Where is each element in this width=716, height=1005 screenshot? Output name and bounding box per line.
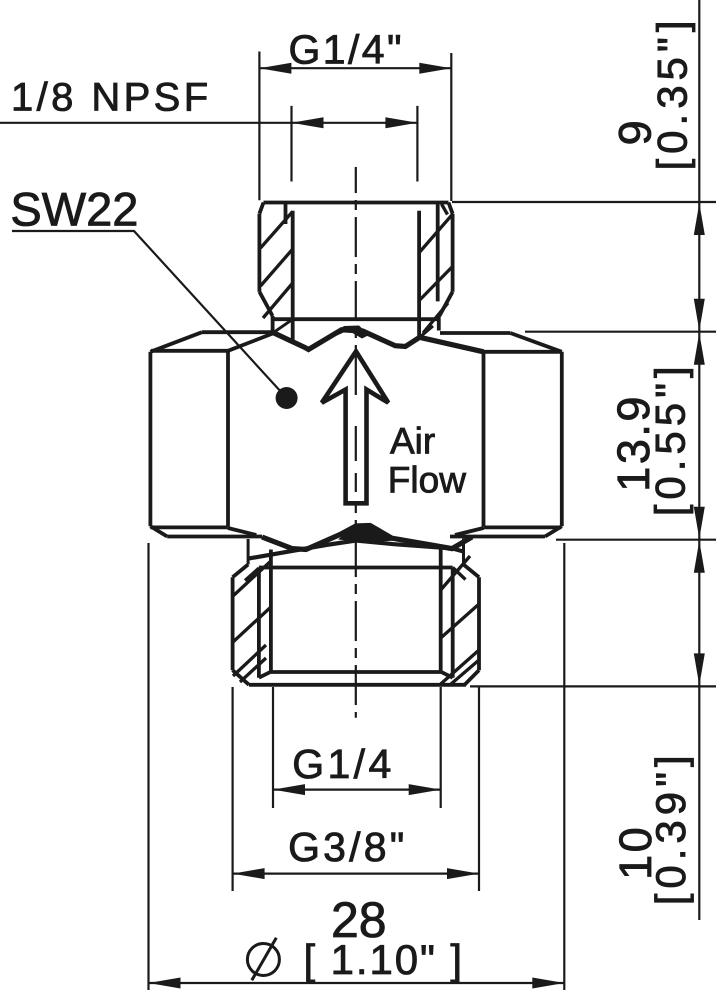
svg-text:Air: Air	[390, 421, 435, 462]
svg-text:[0.39"]: [0.39"]	[647, 750, 694, 905]
svg-text:[0.35"]: [0.35"]	[649, 16, 696, 171]
svg-text:G3/8": G3/8"	[288, 824, 407, 870]
svg-text:[ 1.10" ]: [ 1.10" ]	[304, 936, 464, 983]
svg-text:SW22: SW22	[10, 183, 138, 236]
svg-text:G1/4": G1/4"	[289, 27, 404, 73]
svg-text:[0.55"]: [0.55"]	[647, 361, 694, 516]
svg-text:1/8 NPSF: 1/8 NPSF	[11, 76, 212, 120]
svg-text:G1/4: G1/4	[292, 741, 395, 787]
svg-text:Flow: Flow	[388, 460, 466, 501]
